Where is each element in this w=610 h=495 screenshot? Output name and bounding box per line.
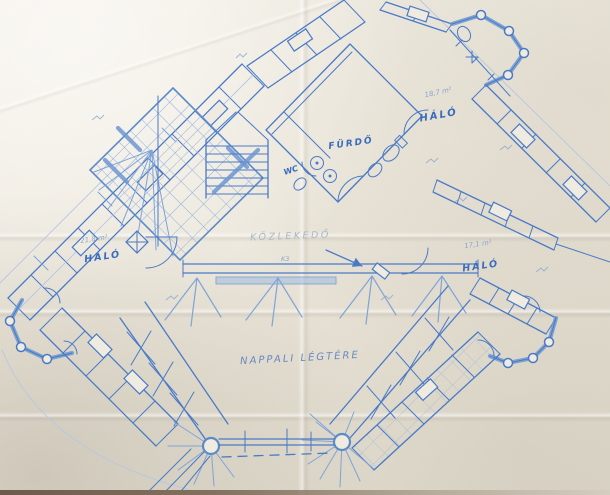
- wall-band-top-center: [247, 0, 365, 88]
- room-label-bathroom: FÜRDŐ: [328, 135, 375, 152]
- bay-post: [504, 359, 513, 368]
- window: [511, 124, 535, 148]
- room-label-bedroom-top: HÁLÓ: [418, 105, 458, 125]
- window: [563, 176, 587, 200]
- floor-plan-photo: 21,8 m² HÁLÓ 18,7 m² HÁLÓ 17,1 m² HÁLÓ F…: [0, 0, 610, 495]
- wing-bottom-right-walls: [352, 278, 556, 470]
- bay-post: [529, 354, 538, 363]
- fan-strut: [340, 276, 396, 324]
- window: [288, 29, 313, 51]
- fan-strut: [246, 278, 302, 326]
- door-leaf: [372, 263, 390, 279]
- exterior-wall-right: [472, 85, 610, 222]
- living-void-structure: [120, 248, 478, 495]
- bay-post: [504, 71, 513, 80]
- bay-post: [17, 343, 26, 352]
- construction-lines: [0, 0, 610, 492]
- room-label-wc: WC: [282, 164, 299, 177]
- fan-strut: [165, 278, 221, 326]
- room-label-bedroom-left: HÁLÓ: [83, 248, 121, 265]
- bay-post: [505, 27, 514, 36]
- door-swing: [402, 248, 428, 274]
- bay-post: [477, 11, 486, 20]
- bay-post: [6, 317, 15, 326]
- room-label-bedroom-right: HÁLÓ: [461, 257, 499, 274]
- area-label-bedroom-top: 18,7 m²: [424, 86, 453, 100]
- bay-window-top-right: [380, 2, 529, 96]
- bay-post: [43, 355, 52, 364]
- window: [489, 202, 512, 221]
- room-label-living-void: NAPPALI LÉGTÉRE: [240, 348, 360, 367]
- bay-post: [545, 338, 554, 347]
- room-label-hallway: KÖZLEKEDŐ: [250, 230, 331, 244]
- beam-mark-label: K3: [281, 255, 289, 263]
- fan-strut: [412, 276, 466, 322]
- table-edge-shadow: [0, 490, 610, 495]
- structural-post: [334, 434, 350, 450]
- area-label-bedroom-right: 17,1 m²: [464, 238, 492, 250]
- window: [507, 290, 530, 309]
- door-swing: [45, 288, 60, 303]
- wc-pan: [292, 176, 309, 193]
- floorplan-drawing: 21,8 m² HÁLÓ 18,7 m² HÁLÓ 17,1 m² HÁLÓ F…: [0, 0, 610, 495]
- bidet: [365, 160, 384, 179]
- bay-post: [520, 49, 529, 58]
- bathroom-block: [266, 44, 428, 202]
- structural-post: [203, 438, 219, 454]
